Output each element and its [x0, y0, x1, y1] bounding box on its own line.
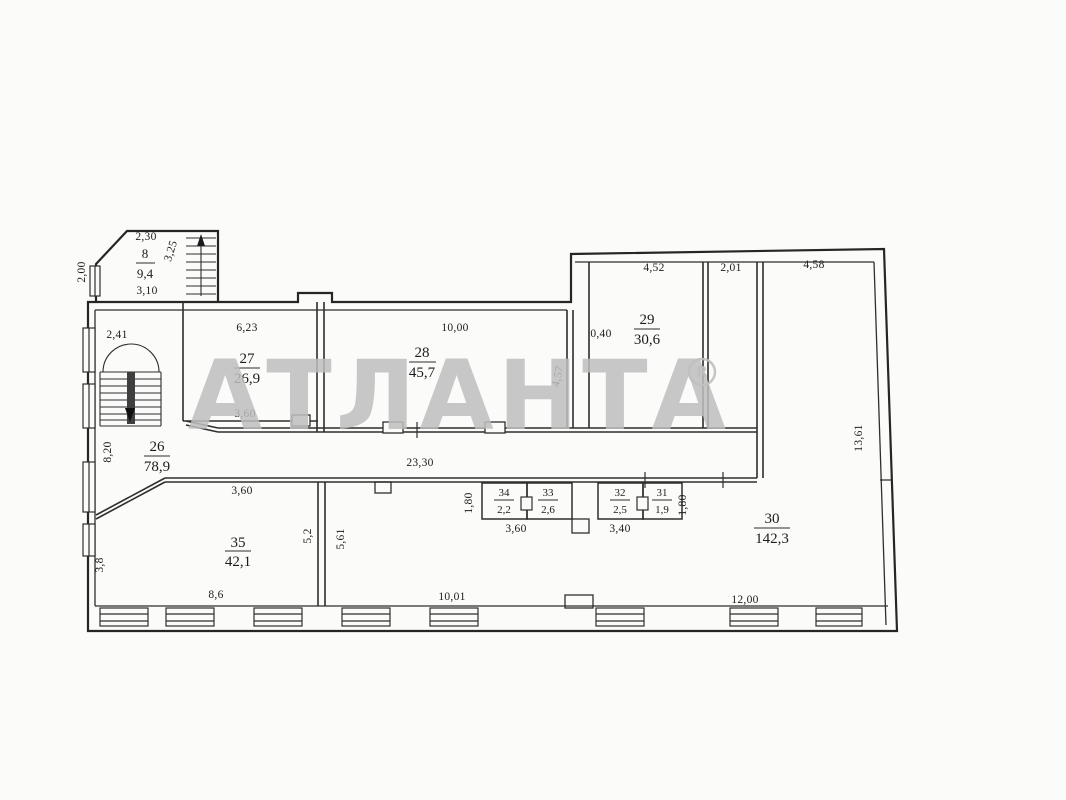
door-swing-arc	[103, 344, 159, 372]
window-symbol	[83, 328, 95, 372]
dim-room29-top: 4,52	[643, 262, 664, 274]
staircase-main	[100, 344, 161, 426]
room-label-30: 30 142,3	[754, 511, 790, 547]
room-label-33: 33 2,6	[538, 487, 558, 516]
door-symbol	[521, 497, 532, 510]
dim-closets-right-height: 1,80	[677, 494, 689, 515]
dim-room35-bottom: 8,6	[208, 589, 223, 601]
room-number: 32	[615, 487, 626, 499]
room-number: 33	[543, 487, 555, 499]
room-area: 1,9	[655, 504, 669, 516]
room-number: 26	[150, 439, 166, 455]
stair-arrow-icon	[197, 234, 205, 246]
window-symbol	[90, 266, 100, 296]
dim-shaft-top: 2,01	[720, 262, 741, 274]
room-label-8: 8 9,4	[136, 246, 155, 281]
door-symbol	[637, 497, 648, 510]
watermark-text: АТЛАНТА	[188, 340, 730, 452]
dim-closets-left-width: 3,60	[505, 523, 526, 535]
dim-hall-left: 8,20	[102, 441, 114, 462]
wall-pier	[572, 519, 589, 533]
window-symbol	[596, 608, 644, 626]
window-symbol	[730, 608, 778, 626]
dim-room30-right: 13,61	[853, 424, 865, 451]
dim-annex-side: 3,25	[162, 239, 180, 263]
room-area: 142,3	[755, 531, 789, 547]
room-number: 30	[765, 511, 780, 527]
room-area: 2,5	[613, 504, 627, 516]
window-symbol	[342, 608, 390, 626]
room-label-26: 26 78,9	[144, 439, 170, 475]
room-number: 34	[499, 487, 511, 499]
window-symbol	[83, 462, 95, 512]
window-symbol	[83, 524, 95, 556]
room-number: 31	[657, 487, 668, 499]
dim-room35-right: 5,2	[302, 528, 314, 543]
room-number: 8	[142, 246, 149, 261]
room-number: 35	[231, 535, 246, 551]
staircase-annex	[186, 234, 216, 296]
dim-open-left-height: 5,61	[335, 528, 347, 549]
room-area: 78,9	[144, 459, 170, 475]
window-symbol	[430, 608, 478, 626]
window-symbol	[100, 608, 148, 626]
dim-open-bottom-right: 12,00	[731, 594, 758, 606]
window-symbol	[254, 608, 302, 626]
dim-room35-left: 3,8	[94, 557, 106, 572]
dim-room28-top: 10,00	[441, 322, 468, 334]
room-label-34: 34 2,2	[494, 487, 514, 516]
dim-room30-top: 4,58	[803, 259, 824, 271]
dim-funnel-bottom: 3,60	[231, 485, 252, 497]
dim-closets-right-width: 3,40	[609, 523, 630, 535]
dim-open-bottom-left: 10,01	[438, 591, 465, 603]
room-label-31: 31 1,9	[652, 487, 672, 516]
window-symbol	[816, 608, 862, 626]
room-area: 2,6	[541, 504, 555, 516]
window-symbol	[166, 608, 214, 626]
room-label-32: 32 2,5	[610, 487, 630, 516]
dim-stair-hall-top: 2,41	[106, 329, 127, 341]
room-area: 9,4	[137, 266, 154, 281]
dim-annex-left: 2,00	[76, 261, 88, 282]
floor-plan: 8 9,4 26 78,9 27 26,9 28 45,7 29 30,6 30…	[0, 0, 1066, 800]
room-number: 29	[640, 312, 655, 328]
dim-room29-offset: 0,40	[590, 328, 611, 340]
room-area: 42,1	[225, 554, 251, 570]
window-symbol	[83, 384, 95, 428]
registered-mark-letter: R	[696, 363, 708, 381]
dim-room27-top: 6,23	[236, 322, 257, 334]
dim-annex-top: 2,30	[135, 231, 156, 243]
room-label-35: 35 42,1	[225, 535, 251, 570]
wall-pilaster	[375, 482, 391, 493]
watermark: АТЛАНТА R	[188, 340, 730, 452]
dim-annex-bottom: 3,10	[136, 285, 157, 297]
room-area: 2,2	[497, 504, 511, 516]
dim-closets-left-height: 1,80	[463, 492, 475, 513]
windows-bottom	[100, 608, 862, 626]
dim-corridor: 23,30	[406, 457, 433, 469]
